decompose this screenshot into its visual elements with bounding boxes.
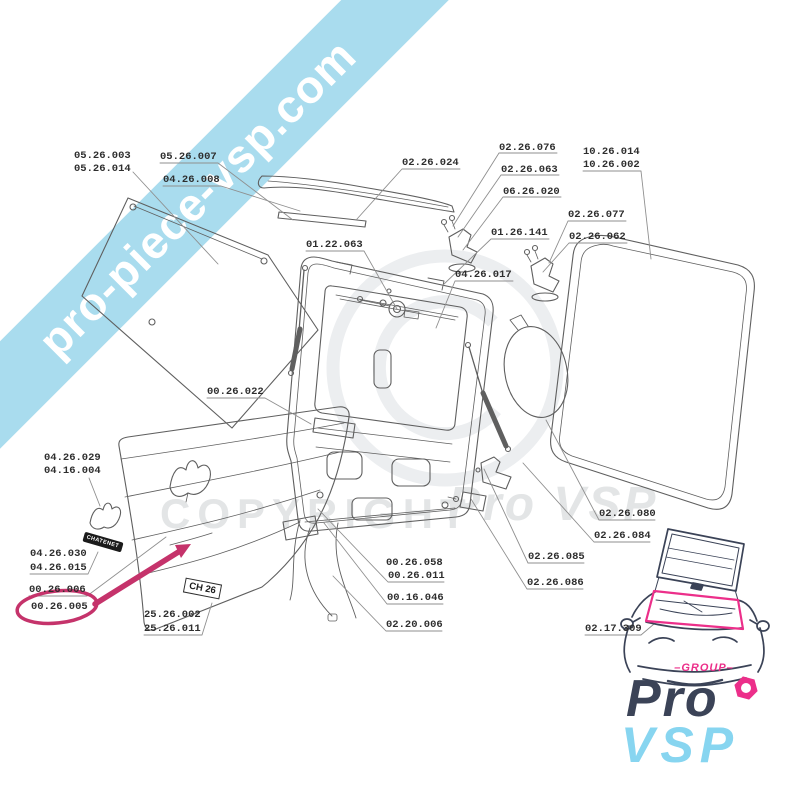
- logo-vsp-text: VSP: [621, 716, 739, 774]
- part-number-label: 04.26.029: [44, 452, 101, 464]
- part-number-label: 00.26.058: [386, 557, 443, 569]
- part-number-label: 05.26.003: [74, 150, 131, 162]
- part-number-label: 02.26.084: [594, 530, 651, 542]
- part-number-label: 04.26.015: [30, 562, 87, 574]
- part-number-label: 00.26.006: [29, 584, 86, 596]
- tailgate-rubber-seal: [551, 235, 755, 509]
- logo-car-hatch-highlight: [646, 591, 743, 629]
- chatenet-emblem-part: [90, 503, 121, 529]
- roof-spoiler: [258, 176, 454, 227]
- part-number-label: 02.20.006: [386, 619, 443, 631]
- part-number-label: 02.17.309: [585, 623, 642, 635]
- part-number-label: 05.26.014: [74, 163, 131, 175]
- rear-glass-panel: [82, 198, 318, 428]
- part-number-label: 25.26.011: [144, 623, 201, 635]
- part-number-label: 01.22.063: [306, 239, 363, 251]
- part-number-label: 04.26.008: [163, 174, 220, 186]
- copyright-symbol-watermark: [333, 256, 557, 480]
- part-number-label-highlighted: 00.26.005: [31, 601, 88, 613]
- part-number-label: 06.26.020: [503, 186, 560, 198]
- part-number-label: 02.26.085: [528, 551, 585, 563]
- part-number-label: 00.16.046: [387, 592, 444, 604]
- part-number-label: 00.26.022: [207, 386, 264, 398]
- part-number-label: 02.26.086: [527, 577, 584, 589]
- part-number-label: 04.26.030: [30, 548, 87, 560]
- part-number-label: 02.26.024: [402, 157, 459, 169]
- part-number-label: 01.26.141: [491, 227, 548, 239]
- part-number-label: 02.26.062: [569, 231, 626, 243]
- part-number-label: 25.26.002: [144, 609, 201, 621]
- part-number-label: 10.26.014: [583, 146, 640, 158]
- hex-nut-icon: [733, 675, 759, 701]
- part-number-label: 00.26.011: [388, 570, 445, 582]
- part-number-label: 04.16.004: [44, 465, 101, 477]
- part-number-label: 02.26.080: [599, 508, 656, 520]
- part-number-label: 02.26.063: [501, 164, 558, 176]
- part-number-label: 04.26.017: [455, 269, 512, 281]
- tailgate-outer-panel: [119, 407, 349, 630]
- parts-diagram-image: pro-piece-vsp.com COPYRIGHT Pro VSP: [0, 0, 800, 800]
- part-number-label: 05.26.007: [160, 151, 217, 163]
- part-number-label: 02.26.076: [499, 142, 556, 154]
- part-number-label: 10.26.002: [583, 159, 640, 171]
- part-number-label: 02.26.077: [568, 209, 625, 221]
